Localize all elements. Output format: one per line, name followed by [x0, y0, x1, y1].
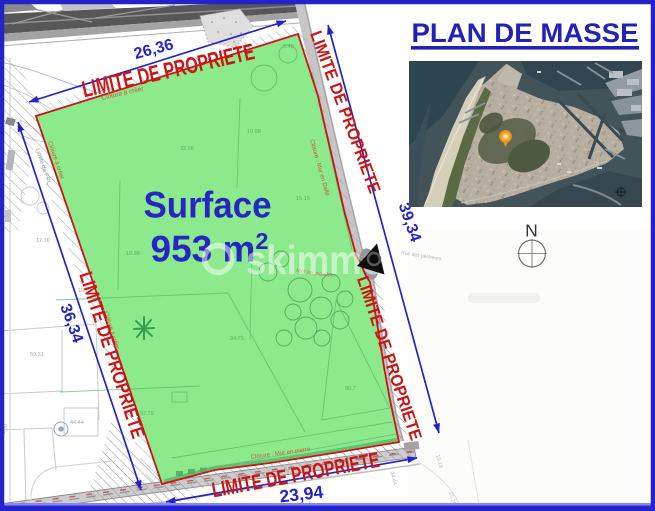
svg-text:15.15: 15.15 — [296, 196, 310, 202]
svg-text:59.31: 59.31 — [30, 352, 44, 358]
svg-text:N: N — [525, 221, 538, 241]
svg-text:44.44: 44.44 — [70, 420, 84, 426]
svg-text:10.98: 10.98 — [247, 129, 261, 135]
svg-text:17.16: 17.16 — [36, 238, 50, 244]
svg-text:10.98: 10.98 — [126, 251, 140, 257]
svg-text:5.40: 5.40 — [283, 44, 294, 50]
svg-text:90.7: 90.7 — [345, 386, 356, 392]
svg-text:PLAN DE MASSE: PLAN DE MASSE — [412, 18, 639, 48]
svg-text:Surface: Surface — [144, 185, 272, 226]
svg-text:32.56: 32.56 — [180, 146, 194, 152]
svg-text:94.75: 94.75 — [230, 336, 244, 342]
